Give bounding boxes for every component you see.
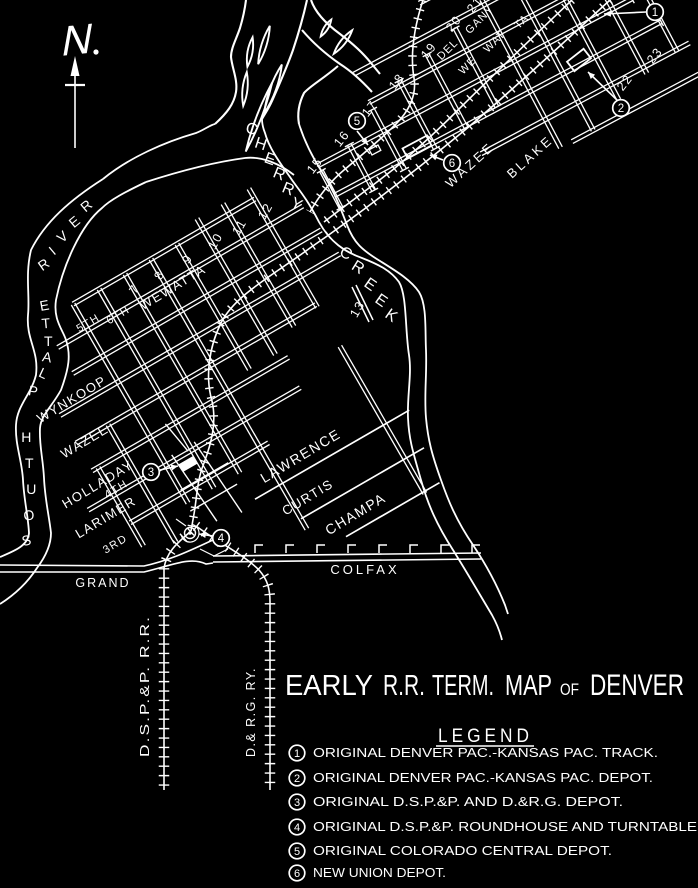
svg-text:1: 1	[294, 748, 300, 760]
svg-text:COLFAX: COLFAX	[330, 562, 399, 577]
svg-text:NEW UNION DEPOT.: NEW UNION DEPOT.	[313, 866, 446, 880]
svg-text:4: 4	[218, 533, 225, 545]
svg-text:T: T	[25, 455, 35, 471]
svg-text:2: 2	[618, 103, 624, 115]
svg-text:ORIGINAL D.S.P.&P. AND D.&R.G.: ORIGINAL D.S.P.&P. AND D.&R.G. DEPOT.	[313, 795, 623, 809]
svg-text:T: T	[44, 333, 54, 349]
svg-text:D.S.P.&P. R.R.: D.S.P.&P. R.R.	[138, 615, 152, 757]
svg-text:ORIGINAL DENVER PAC.-KANSAS PA: ORIGINAL DENVER PAC.-KANSAS PAC. DEPOT.	[313, 771, 653, 785]
svg-text:GRAND: GRAND	[75, 576, 130, 590]
svg-text:D.& R.G. RY.: D.& R.G. RY.	[244, 667, 258, 757]
svg-text:2: 2	[294, 773, 300, 785]
svg-text:3: 3	[294, 797, 300, 809]
svg-text:O: O	[23, 507, 37, 524]
svg-text:ORIGINAL DENVER PAC.-KANSAS PA: ORIGINAL DENVER PAC.-KANSAS PAC. TRACK.	[313, 746, 658, 760]
svg-text:6: 6	[294, 868, 300, 880]
svg-text:ORIGINAL D.S.P.&P. ROUNDHOUSE: ORIGINAL D.S.P.&P. ROUNDHOUSE AND TURNTA…	[313, 820, 697, 834]
svg-text:MAP: MAP	[505, 670, 552, 702]
svg-text:5: 5	[294, 846, 300, 858]
svg-text:DENVER: DENVER	[590, 669, 684, 702]
svg-text:ORIGINAL COLORADO CENTRAL DEPO: ORIGINAL COLORADO CENTRAL DEPOT.	[313, 844, 612, 858]
svg-text:H: H	[21, 429, 33, 445]
svg-text:4: 4	[294, 822, 300, 834]
svg-text:5: 5	[354, 116, 360, 128]
svg-text:R.R.: R.R.	[383, 670, 425, 702]
svg-text:1: 1	[652, 7, 658, 19]
svg-text:OF: OF	[560, 680, 579, 699]
svg-text:3: 3	[148, 467, 154, 479]
svg-text:T: T	[41, 315, 52, 332]
svg-text:U: U	[26, 481, 38, 497]
svg-text:EARLY: EARLY	[285, 670, 373, 702]
svg-text:TERM.: TERM.	[432, 670, 494, 702]
svg-text:LEGEND: LEGEND	[438, 725, 533, 747]
